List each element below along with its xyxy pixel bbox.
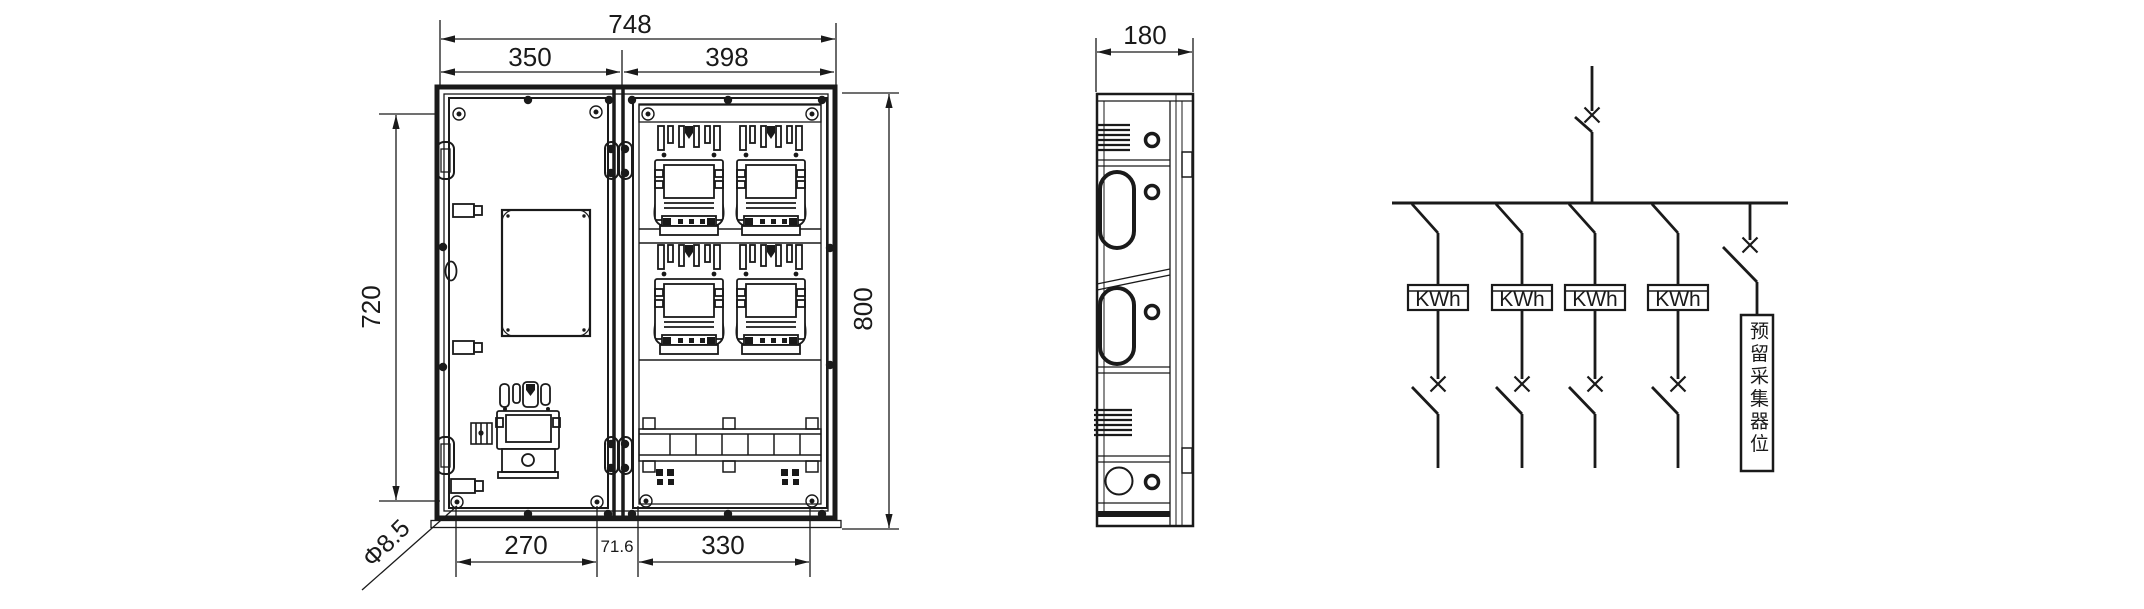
dim-left-width: 350 bbox=[441, 42, 620, 72]
wall-tabs bbox=[451, 204, 483, 493]
top-mounting-strip bbox=[639, 105, 821, 122]
dim-inner-height: 720 bbox=[356, 114, 440, 501]
vent-louvers-bottom bbox=[1094, 410, 1132, 435]
meter-box-technical-drawing: 748 350 398 720 800 bbox=[0, 0, 2144, 609]
meter-3 bbox=[654, 245, 723, 354]
dim-270-label: 270 bbox=[504, 530, 547, 560]
side-cabinet bbox=[1094, 94, 1193, 526]
side-hinge-top bbox=[1182, 152, 1192, 177]
dim-350-label: 350 bbox=[508, 42, 551, 72]
right-door bbox=[633, 98, 827, 508]
kwh-label-2: KWh bbox=[1499, 288, 1545, 311]
door-hinge-bottom bbox=[437, 437, 454, 474]
door-divider bbox=[605, 89, 632, 517]
dim-748-label: 748 bbox=[608, 9, 651, 39]
main-device bbox=[496, 382, 560, 478]
side-hinge-bottom bbox=[1182, 448, 1192, 473]
meter-1 bbox=[654, 126, 723, 235]
dim-71-6-label: 71.6 bbox=[600, 537, 633, 556]
base-band bbox=[1097, 511, 1170, 517]
incoming-breaker bbox=[1575, 66, 1600, 203]
front-view: 748 350 398 720 800 bbox=[356, 9, 899, 590]
lock-block bbox=[471, 423, 492, 444]
wall-slot bbox=[446, 262, 457, 281]
kwh-label-3: KWh bbox=[1572, 288, 1618, 311]
left-door bbox=[437, 98, 608, 508]
divider-hinge-bottom bbox=[605, 437, 632, 474]
side-dimensions: 180 bbox=[1096, 20, 1193, 92]
window-panel bbox=[502, 210, 590, 336]
door-hinge-top bbox=[437, 142, 454, 179]
oval-knockout-2 bbox=[1100, 288, 1134, 364]
dim-total-width: 748 bbox=[440, 9, 836, 87]
terminal-rail bbox=[639, 418, 821, 472]
vent-louvers-top bbox=[1096, 125, 1130, 150]
dim-right-width: 398 bbox=[624, 42, 834, 72]
bottom-hole bbox=[1106, 468, 1133, 495]
dim-720-label: 720 bbox=[356, 285, 386, 328]
meter-2 bbox=[736, 126, 805, 235]
side-knobs bbox=[1146, 134, 1159, 489]
divider-hinge-top bbox=[605, 142, 632, 179]
dim-330-label: 330 bbox=[701, 530, 744, 560]
side-view: 180 bbox=[1094, 20, 1193, 526]
meter-4 bbox=[736, 245, 805, 354]
oval-knockout-1 bbox=[1100, 172, 1134, 248]
kwh-label-4: KWh bbox=[1655, 288, 1701, 311]
dim-180-label: 180 bbox=[1123, 20, 1166, 50]
dim-398-label: 398 bbox=[705, 42, 748, 72]
branch-3: KWh bbox=[1565, 204, 1625, 468]
branch-1: KWh bbox=[1408, 204, 1468, 468]
dim-phi8-5-label: Φ8.5 bbox=[357, 514, 415, 572]
cabinet-base bbox=[431, 521, 841, 528]
kwh-label-1: KWh bbox=[1415, 288, 1461, 311]
branch-4: KWh bbox=[1648, 204, 1708, 468]
dim-total-height: 800 bbox=[842, 93, 899, 529]
dim-800-label: 800 bbox=[848, 287, 878, 330]
branch-2: KWh bbox=[1492, 204, 1552, 468]
reserved-collector-label: 预留采集器位 bbox=[1742, 321, 1772, 471]
schematic: KWh KWh KWh bbox=[1392, 66, 1788, 471]
drawing-svg: 748 350 398 720 800 bbox=[0, 0, 2144, 609]
